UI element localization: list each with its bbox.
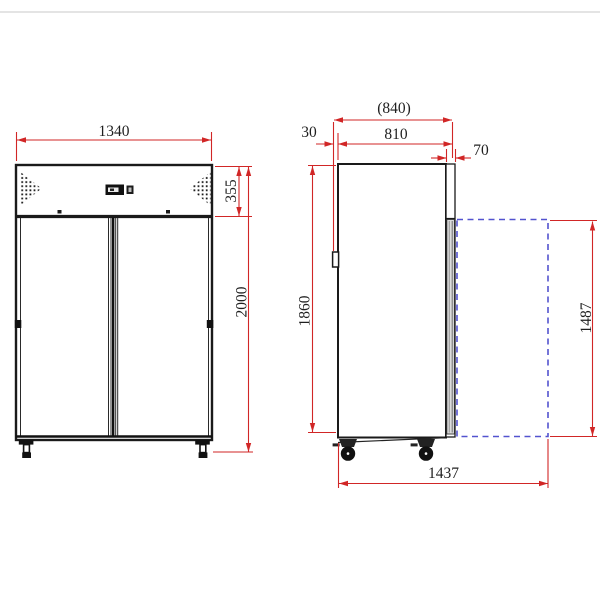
label-depth-door-open: 1437 [428,465,459,482]
label-top-section-height: 355 [223,179,240,203]
dim-door-thickness [431,149,471,162]
hinge-right [207,320,214,328]
drawing-page: 1340 355 2000 (840) 30 810 70 1860 1487 … [0,0,600,600]
side-body-outline [338,164,446,438]
caster-front-icon [411,439,435,461]
side-view [333,164,548,461]
label-rear-clearance: 30 [301,124,317,141]
label-body-height: 1860 [297,295,314,326]
control-panel [106,185,134,196]
hinge-left [15,320,21,328]
foot-left [19,440,34,458]
dim-rear-clearance [316,141,334,146]
label-overall-height: 2000 [234,286,251,317]
label-overall-depth: (840) [377,100,411,117]
screw-right [166,210,170,214]
side-door [447,220,455,435]
front-view [15,165,214,458]
foot-right [195,440,210,458]
label-body-depth: 810 [384,126,408,143]
label-door-height: 1487 [578,302,595,333]
label-door-thickness: 70 [473,142,489,159]
rear-spacer [333,252,339,267]
screw-left [58,210,62,214]
technical-drawing: 1340 355 2000 (840) 30 810 70 1860 1487 … [0,0,600,600]
caster-back-icon [333,439,357,461]
door-swing-outline [457,220,548,437]
label-front-width: 1340 [99,123,130,140]
